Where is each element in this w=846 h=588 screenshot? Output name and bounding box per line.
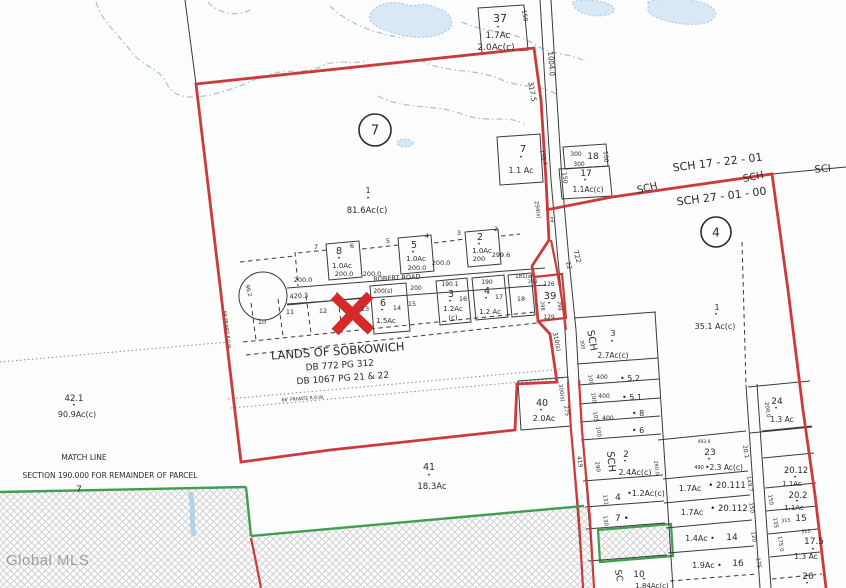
map-label: 120 (749, 531, 756, 543)
map-label: SCH (636, 181, 659, 197)
green-hatch-parcel (598, 524, 673, 562)
map-label: 150 (747, 502, 754, 514)
map-label: 26.1 (528, 279, 538, 285)
map-label: 299 (556, 301, 563, 311)
map-label: 7 (76, 485, 82, 495)
map-label: 149.7 (745, 476, 753, 493)
stream (96, 2, 260, 97)
map-label: 200 (410, 285, 422, 292)
map-label: 17 (495, 293, 503, 301)
map-label: 13 (361, 305, 369, 313)
east-column-dashed (772, 574, 822, 579)
map-label: 12 (319, 307, 327, 315)
map-label: 5 (386, 237, 390, 245)
map-label: 14 (726, 533, 738, 543)
section-marker-7: 7 (371, 124, 379, 139)
parcel-1-acreage: 81.6Ac(c) (347, 206, 388, 216)
map-label: • (774, 405, 778, 412)
map-label: • (519, 154, 523, 161)
map-label: 126 (543, 281, 555, 288)
map-label: 1.9Ac • (692, 561, 722, 570)
section-note: SECTION 190.000 FOR REMAINDER OF PARCEL (23, 471, 199, 480)
section-marker-4: 4 (712, 225, 720, 239)
map-label: • (623, 458, 627, 465)
pond (369, 2, 451, 37)
map-label: 150 (561, 172, 569, 184)
map-label: 200.0 (294, 276, 313, 284)
stream-segment (190, 492, 194, 536)
parcel-map: 37•1.7Ac2.0Ac(c)1501004.0317.57•1.1 Ac15… (0, 0, 846, 588)
map-label: • 5.1 (622, 393, 642, 402)
hatch-layer (0, 487, 673, 588)
map-label: 1.4Ac • (685, 534, 715, 543)
map-label: 1.1Ac(c) (572, 185, 603, 194)
map-label: 420.3 (289, 291, 308, 300)
map-label: SCH (742, 170, 765, 185)
map-label: 129 (543, 314, 555, 321)
map-label: 2.0Ac(c) (477, 43, 514, 53)
map-label: 493.9 (698, 439, 711, 445)
stream (208, 2, 250, 14)
map-label: 1 (550, 216, 554, 224)
map-label: 200 (473, 255, 485, 263)
watermark: Global MLS (6, 552, 89, 569)
map-label: 299.6 (492, 251, 511, 259)
map-label: 400 (602, 415, 614, 422)
map-label: 15 (408, 300, 416, 308)
map-label: 190.1 (441, 281, 458, 288)
map-label: 14 (393, 304, 401, 312)
cul-de-sac (239, 272, 287, 320)
map-label: 300 (570, 151, 582, 158)
map-label: 1.2 Ac (479, 308, 501, 316)
map-label: • 20.112 (710, 504, 747, 514)
map-label: 1.5Ac (376, 317, 396, 325)
map-label: SCI (814, 163, 831, 175)
map-label: 275 (562, 405, 569, 417)
deed-book-2: DB 1067 PG 21 & 22 (296, 371, 389, 387)
map-label: 90.9Ac(c) (58, 410, 96, 419)
map-label: 100 (589, 392, 596, 404)
map-label: 18 (517, 295, 525, 303)
map-label: 159.4 (538, 149, 548, 166)
map-label: • (380, 307, 384, 314)
map-label: 2.0Ac (533, 414, 555, 423)
map-label: 419 (575, 455, 584, 468)
map-label: 315 (781, 518, 791, 525)
map-label: 300(s) (557, 384, 565, 402)
map-label: (c) (448, 314, 458, 322)
map-label: 200.0 (335, 270, 354, 278)
map-label: • (427, 472, 431, 479)
map-label: 200(s) (373, 288, 392, 295)
pond (572, 0, 614, 16)
map-label: 1.0Ac (406, 255, 426, 263)
map-label: 1.1Ac (784, 504, 804, 512)
map-label: 100 (594, 426, 601, 438)
map-label: 260.0 (652, 460, 660, 475)
pond (648, 0, 715, 24)
map-label: 10 (258, 318, 266, 326)
map-label: 1.84Ac(c) (635, 582, 669, 588)
map-label: 1.7Ac (681, 508, 703, 517)
map-label: • (539, 407, 543, 414)
map-label: 96.2 (243, 284, 252, 297)
map-label: • (496, 24, 500, 31)
map-label: 150 (766, 494, 773, 506)
west-dashed-line (0, 342, 228, 362)
map-label: 22 (564, 261, 573, 270)
map-label: 16 (459, 295, 467, 303)
map-label: 130 (601, 515, 608, 527)
road-name-sch-17-22-01: SCH 17 - 22 - 01 (672, 151, 763, 175)
map-label: 200.0 (408, 264, 427, 272)
map-label: 400 (598, 393, 610, 400)
deed-book-1: DB 772 PG 312 (305, 359, 374, 374)
map-label: 300 (578, 340, 586, 350)
map-label: • (72, 402, 76, 409)
map-label: 315 (801, 529, 811, 536)
lot-37-number: 37 (493, 12, 507, 25)
road-name-robert-road: ROBERT ROAD (373, 273, 421, 283)
map-label: 2.7Ac(c) (597, 351, 628, 360)
map-label: • 5.2 (620, 374, 640, 383)
map-label: 1004.0 (546, 51, 556, 76)
map-label: • 8 (632, 409, 644, 418)
small-pond (397, 139, 413, 147)
remainder-hatch-area (0, 487, 592, 588)
subject-property-x-marker (334, 295, 371, 332)
map-label: 1.1 Ac (509, 166, 534, 175)
lot-18-number: 18 (587, 152, 599, 162)
side-road-dashed (742, 242, 746, 385)
map-label: • (805, 580, 809, 587)
map-label: •1.2Ac(c) (627, 489, 665, 498)
map-label: 200.0 (432, 259, 451, 267)
map-label: 1.1Ac (782, 480, 802, 488)
map-label: 1.0Ac (472, 247, 492, 255)
map-label: 2 (494, 225, 498, 233)
map-label: 6 (350, 242, 354, 250)
map-label: 1.0Ac (332, 262, 352, 270)
map-label: 298 (539, 301, 546, 311)
map-label: 190 (481, 279, 493, 286)
map-label: 4 (615, 493, 621, 503)
map-label: 1.3 Ac (770, 415, 793, 424)
tax-map-screenshot: 37•1.7Ac2.0Ac(c)1501004.0317.57•1.1 Ac15… (0, 0, 846, 588)
map-label: 135 (771, 517, 778, 529)
private-row-dotted (228, 369, 564, 408)
map-label: • (707, 456, 711, 463)
stream (378, 96, 524, 124)
map-label: 1.3 Ac (794, 552, 817, 561)
mid-column-dashed (670, 574, 757, 581)
map-label: SCH (604, 451, 617, 473)
map-label: 2.4Ac(c) (618, 468, 651, 477)
map-label: 300 (573, 161, 585, 168)
map-label: 7 • (615, 514, 629, 524)
map-label: • (448, 298, 452, 305)
map-label: 175.0 (776, 536, 784, 553)
map-label: 400 (596, 374, 608, 381)
map-label: • 6 (632, 426, 644, 435)
map-label: 15 (795, 514, 806, 524)
map-label: 11 (286, 308, 294, 316)
map-label: 18.3Ac (417, 482, 447, 492)
map-label: 1.7Ac (485, 31, 510, 41)
map-label: 294(s) (532, 201, 541, 219)
map-label: 317.5 (526, 81, 537, 102)
bearing-line (185, 0, 196, 84)
map-label: 20.1 (741, 445, 750, 460)
map-label: SC (612, 569, 624, 583)
map-label: 3 (457, 229, 461, 237)
map-label: 7 (314, 243, 318, 251)
block-dashed (240, 256, 295, 262)
map-label: 35.1 Ac(c) (695, 322, 736, 331)
map-label: 290 (593, 461, 600, 473)
map-label: 722 (571, 249, 582, 264)
map-label: • (610, 338, 614, 345)
match-line-label: MATCH LINE (61, 453, 106, 462)
map-label: 150 (520, 9, 529, 22)
map-label: 66' PRIVATE R.O.W. (281, 395, 324, 404)
map-label: 100 (602, 151, 610, 163)
map-label: 16 (732, 559, 744, 569)
map-label: • (366, 195, 370, 202)
map-label: 490 (694, 465, 704, 471)
map-label: • (714, 311, 718, 318)
map-label: 3 (610, 329, 615, 338)
owner-label: LANDS OF SOBKOWICH (270, 339, 405, 362)
map-label: • (337, 255, 341, 262)
parcel-1-number: 1 (365, 186, 370, 195)
map-label: 175 (754, 557, 761, 569)
map-label: 1.2Ac (443, 305, 463, 313)
map-label: • (484, 295, 488, 302)
map-label: 4 (425, 232, 429, 240)
map-label: • (547, 300, 551, 307)
map-label: • 20.111 (708, 481, 745, 491)
map-label: 1.7Ac (679, 484, 701, 493)
map-label: •2.3 Ac(c) (705, 463, 743, 472)
road-name-sch-27-01-00: SCH 27 - 01 - 00 (676, 185, 767, 209)
map-label: 131 (601, 494, 608, 505)
map-label: • (583, 177, 587, 184)
